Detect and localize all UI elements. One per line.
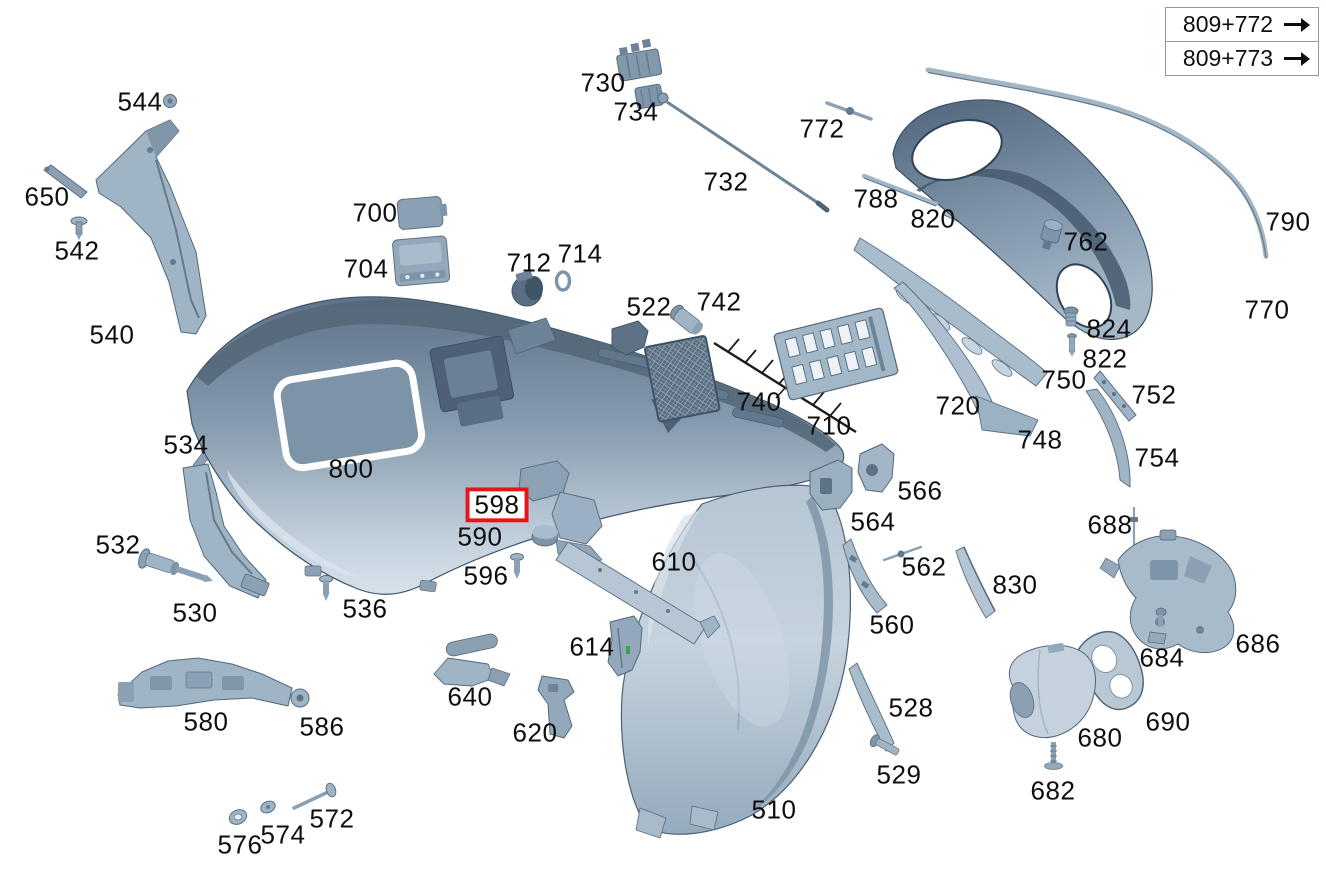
reference-links-box: 809+772 809+773 [1165,7,1319,76]
part-label-580[interactable]: 580 [184,708,229,735]
part-label-762[interactable]: 762 [1064,228,1109,255]
part-714-shape [557,272,570,290]
part-682-shape [1045,742,1063,770]
part-576-shape [227,807,249,827]
part-544-shape [164,95,177,108]
part-536-shape [320,576,333,602]
part-label-542[interactable]: 542 [55,237,100,264]
part-label-822[interactable]: 822 [1083,345,1128,372]
part-586-shape [291,689,309,707]
part-580-shape [118,658,292,708]
part-label-610[interactable]: 610 [652,548,697,575]
part-label-650[interactable]: 650 [25,183,70,210]
part-label-586[interactable]: 586 [300,713,345,740]
part-label-820[interactable]: 820 [911,205,956,232]
part-540-shape [96,120,206,334]
part-label-640[interactable]: 640 [448,683,493,710]
part-label-754[interactable]: 754 [1135,444,1180,471]
part-label-684[interactable]: 684 [1140,644,1185,671]
arrow-right-icon [1284,23,1301,26]
part-566-shape [858,444,894,492]
part-label-770[interactable]: 770 [1245,296,1290,323]
part-label-576[interactable]: 576 [218,831,263,858]
part-label-732[interactable]: 732 [704,168,749,195]
part-510-shape [621,485,850,838]
part-label-574[interactable]: 574 [261,821,306,848]
part-740-shape [644,336,719,422]
part-label-596[interactable]: 596 [464,562,509,589]
part-label-772[interactable]: 772 [800,115,845,142]
part-label-688[interactable]: 688 [1088,511,1133,538]
arrow-right-icon [1284,57,1301,60]
part-704-shape [392,236,450,287]
part-label-590[interactable]: 590 [458,523,503,550]
part-label-788[interactable]: 788 [854,185,899,212]
part-label-572[interactable]: 572 [310,805,355,832]
part-574-shape [259,799,277,815]
part-label-532[interactable]: 532 [96,531,141,558]
parts-diagram-page: 5446505425405345325305805865765745725368… [0,0,1326,881]
part-label-690[interactable]: 690 [1146,708,1191,735]
part-label-562[interactable]: 562 [902,553,947,580]
reference-link-label: 809+773 [1183,45,1273,72]
part-686-shape [1100,530,1236,653]
part-label-534[interactable]: 534 [164,431,209,458]
part-label-620[interactable]: 620 [513,719,558,746]
part-label-560[interactable]: 560 [870,611,915,638]
part-label-714[interactable]: 714 [558,240,603,267]
part-label-510[interactable]: 510 [752,796,797,823]
part-label-680[interactable]: 680 [1078,724,1123,751]
part-822-shape [1068,334,1077,358]
part-label-740[interactable]: 740 [737,388,782,415]
part-720-shape [773,307,898,400]
part-label-536[interactable]: 536 [343,595,388,622]
part-830-shape [956,547,995,618]
part-label-564[interactable]: 564 [851,508,896,535]
part-label-742[interactable]: 742 [697,288,742,315]
part-label-824[interactable]: 824 [1087,315,1132,342]
part-label-614[interactable]: 614 [570,633,615,660]
part-label-750[interactable]: 750 [1042,366,1087,393]
part-596-shape [511,554,524,580]
part-640-shape [434,633,510,686]
part-824-shape [1064,307,1078,326]
part-label-700[interactable]: 700 [353,199,398,226]
part-label-529[interactable]: 529 [877,761,922,788]
part-label-710[interactable]: 710 [807,412,852,439]
part-700-shape [397,196,448,230]
part-label-598[interactable]: 598 [466,487,529,522]
part-label-704[interactable]: 704 [344,255,389,282]
part-label-748[interactable]: 748 [1018,426,1063,453]
part-label-730[interactable]: 730 [581,69,626,96]
part-label-528[interactable]: 528 [889,694,934,721]
part-label-720[interactable]: 720 [936,392,981,419]
part-label-566[interactable]: 566 [898,477,943,504]
part-label-544[interactable]: 544 [118,88,163,115]
part-label-734[interactable]: 734 [614,98,659,125]
part-label-540[interactable]: 540 [90,321,135,348]
part-label-800[interactable]: 800 [329,455,374,482]
part-label-752[interactable]: 752 [1132,381,1177,408]
part-label-530[interactable]: 530 [173,599,218,626]
part-label-790[interactable]: 790 [1266,208,1311,235]
part-label-712[interactable]: 712 [507,249,552,276]
part-label-830[interactable]: 830 [993,571,1038,598]
reference-link-809-772[interactable]: 809+772 [1166,8,1318,41]
reference-link-809-773[interactable]: 809+773 [1166,41,1318,75]
part-label-686[interactable]: 686 [1236,630,1281,657]
reference-link-label: 809+772 [1183,11,1273,38]
part-label-522[interactable]: 522 [627,293,672,320]
part-label-682[interactable]: 682 [1031,777,1076,804]
